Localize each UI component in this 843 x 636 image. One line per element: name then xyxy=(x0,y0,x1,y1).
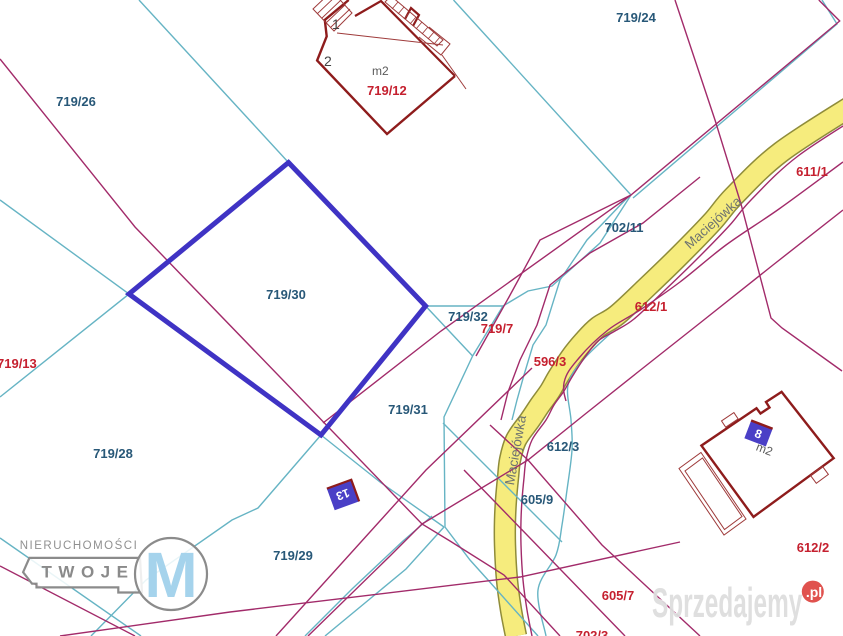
svg-text:719/29: 719/29 xyxy=(273,548,313,563)
svg-text:719/31: 719/31 xyxy=(388,402,428,417)
svg-text:612/2: 612/2 xyxy=(797,540,830,555)
svg-text:719/7: 719/7 xyxy=(481,321,514,336)
svg-text:1: 1 xyxy=(332,16,340,32)
svg-text:m2: m2 xyxy=(372,64,389,78)
svg-text:719/26: 719/26 xyxy=(56,94,96,109)
svg-text:M: M xyxy=(144,539,197,611)
svg-text:612/3: 612/3 xyxy=(547,439,580,454)
svg-text:719/28: 719/28 xyxy=(93,446,133,461)
svg-text:Sprzedajemy: Sprzedajemy xyxy=(652,580,802,626)
svg-text:719/24: 719/24 xyxy=(616,10,657,25)
svg-text:605/9: 605/9 xyxy=(521,492,554,507)
svg-text:719/13: 719/13 xyxy=(0,356,37,371)
svg-text:719/30: 719/30 xyxy=(266,287,306,302)
svg-text:596/3: 596/3 xyxy=(534,354,567,369)
svg-text:611/1: 611/1 xyxy=(796,164,828,179)
svg-text:NIERUCHOMOŚCI: NIERUCHOMOŚCI xyxy=(20,539,139,552)
svg-text:.pl: .pl xyxy=(806,584,822,600)
svg-text:702/3: 702/3 xyxy=(576,628,609,636)
svg-text:612/1: 612/1 xyxy=(635,299,668,314)
svg-text:719/12: 719/12 xyxy=(367,83,407,98)
svg-text:2: 2 xyxy=(324,53,332,69)
svg-text:TWOJE: TWOJE xyxy=(42,563,135,582)
svg-text:605/7: 605/7 xyxy=(602,588,635,603)
svg-text:702/11: 702/11 xyxy=(604,220,643,235)
